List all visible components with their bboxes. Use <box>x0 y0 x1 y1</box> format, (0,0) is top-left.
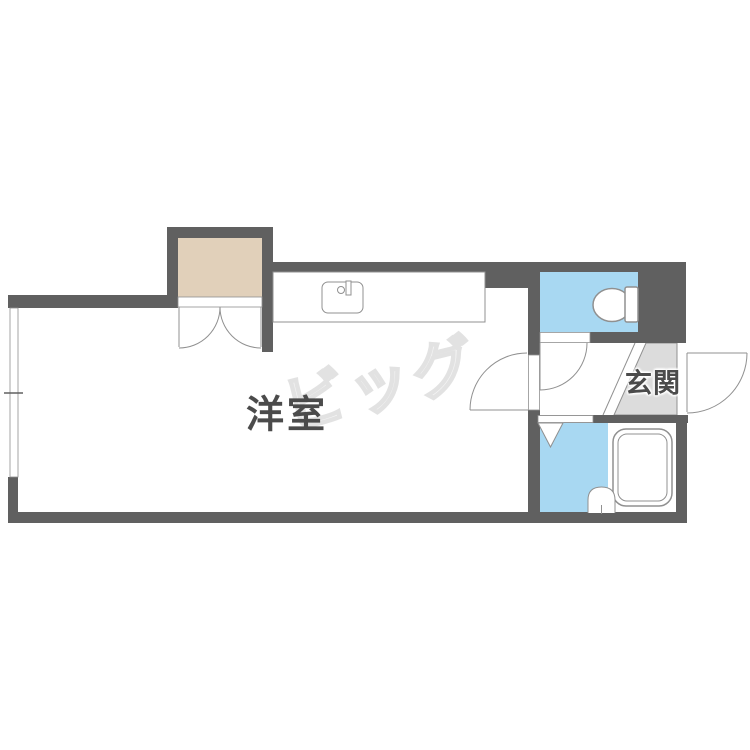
wall-segment <box>8 512 687 523</box>
bathtub-outer <box>613 429 672 506</box>
wall-segment <box>485 262 528 288</box>
entrance-door-arc <box>687 353 747 413</box>
sink-drain-icon <box>338 287 345 294</box>
toilet-door-opening <box>540 333 590 343</box>
window <box>4 308 23 477</box>
entrance-label: 玄関 <box>625 362 681 401</box>
toilet-door <box>540 333 590 391</box>
wall-segment <box>528 410 540 512</box>
entrance-door <box>687 353 747 413</box>
closet-floor <box>178 238 262 298</box>
toilet-door-arc <box>540 343 587 390</box>
wall-segment <box>528 262 540 355</box>
closet-threshold <box>178 297 262 307</box>
closet-door-arc-right <box>220 307 261 348</box>
bathroom-door-opening <box>538 416 593 423</box>
toilet-tank-icon <box>625 287 638 322</box>
wall-segment <box>167 227 273 238</box>
wall-segment <box>262 227 273 352</box>
wall-segment <box>590 332 638 343</box>
room-label: 洋室 <box>246 384 328 439</box>
wall-segment <box>638 262 686 343</box>
wall-segment <box>676 415 687 523</box>
floor-plan: ビッグ 洋室 玄関 <box>0 0 750 750</box>
room-door-opening <box>529 355 540 410</box>
closet-door-arc-left <box>179 307 220 348</box>
wall-segment <box>8 295 178 308</box>
wall-segment <box>167 227 178 308</box>
sink-faucet-icon <box>346 281 351 295</box>
closet-doors <box>178 297 262 348</box>
toilet-fixture <box>593 287 638 322</box>
